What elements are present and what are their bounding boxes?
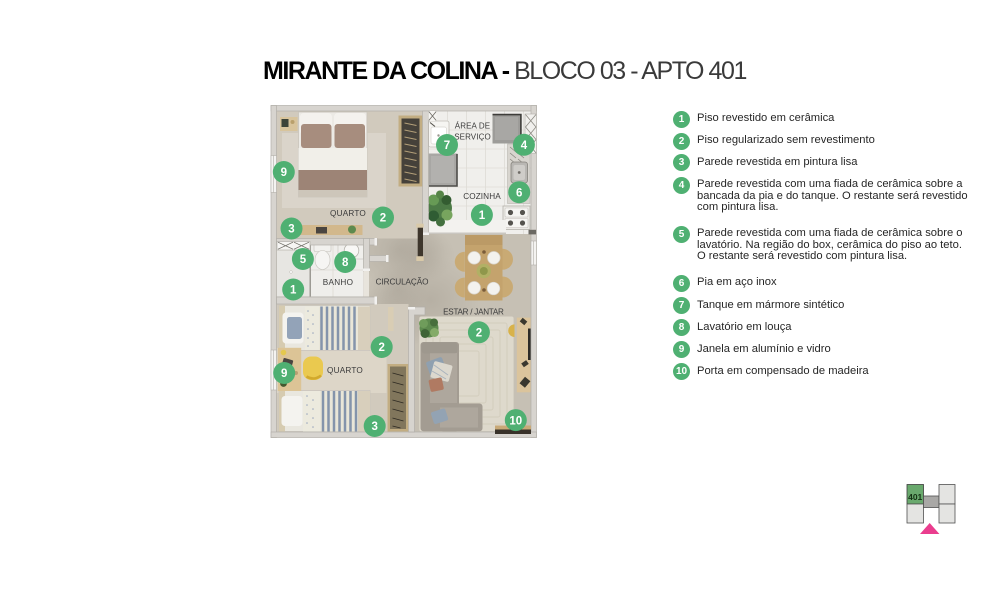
svg-text:QUARTO: QUARTO [330, 209, 366, 218]
svg-text:QUARTO: QUARTO [327, 366, 363, 375]
svg-text:COZINHA: COZINHA [463, 192, 501, 201]
svg-text:2: 2 [380, 213, 386, 225]
svg-text:8: 8 [342, 257, 349, 269]
svg-text:2: 2 [378, 342, 384, 354]
svg-text:1: 1 [290, 285, 297, 297]
svg-text:ÁREA DE: ÁREA DE [455, 121, 490, 130]
svg-text:2: 2 [476, 328, 482, 340]
svg-text:5: 5 [300, 254, 307, 266]
svg-text:401: 401 [908, 492, 922, 502]
svg-text:ESTAR / JANTAR: ESTAR / JANTAR [443, 307, 504, 316]
svg-text:7: 7 [444, 140, 450, 152]
svg-text:6: 6 [516, 187, 522, 199]
svg-text:9: 9 [281, 167, 287, 179]
svg-text:9: 9 [281, 368, 287, 380]
svg-text:10: 10 [509, 415, 522, 427]
svg-text:4: 4 [521, 140, 528, 152]
svg-text:3: 3 [371, 421, 377, 433]
svg-text:3: 3 [288, 224, 294, 236]
svg-text:CIRCULAÇÃO: CIRCULAÇÃO [376, 276, 429, 286]
svg-text:1: 1 [479, 210, 486, 222]
svg-text:SERVIÇO: SERVIÇO [454, 133, 491, 142]
svg-text:BANHO: BANHO [323, 278, 354, 287]
